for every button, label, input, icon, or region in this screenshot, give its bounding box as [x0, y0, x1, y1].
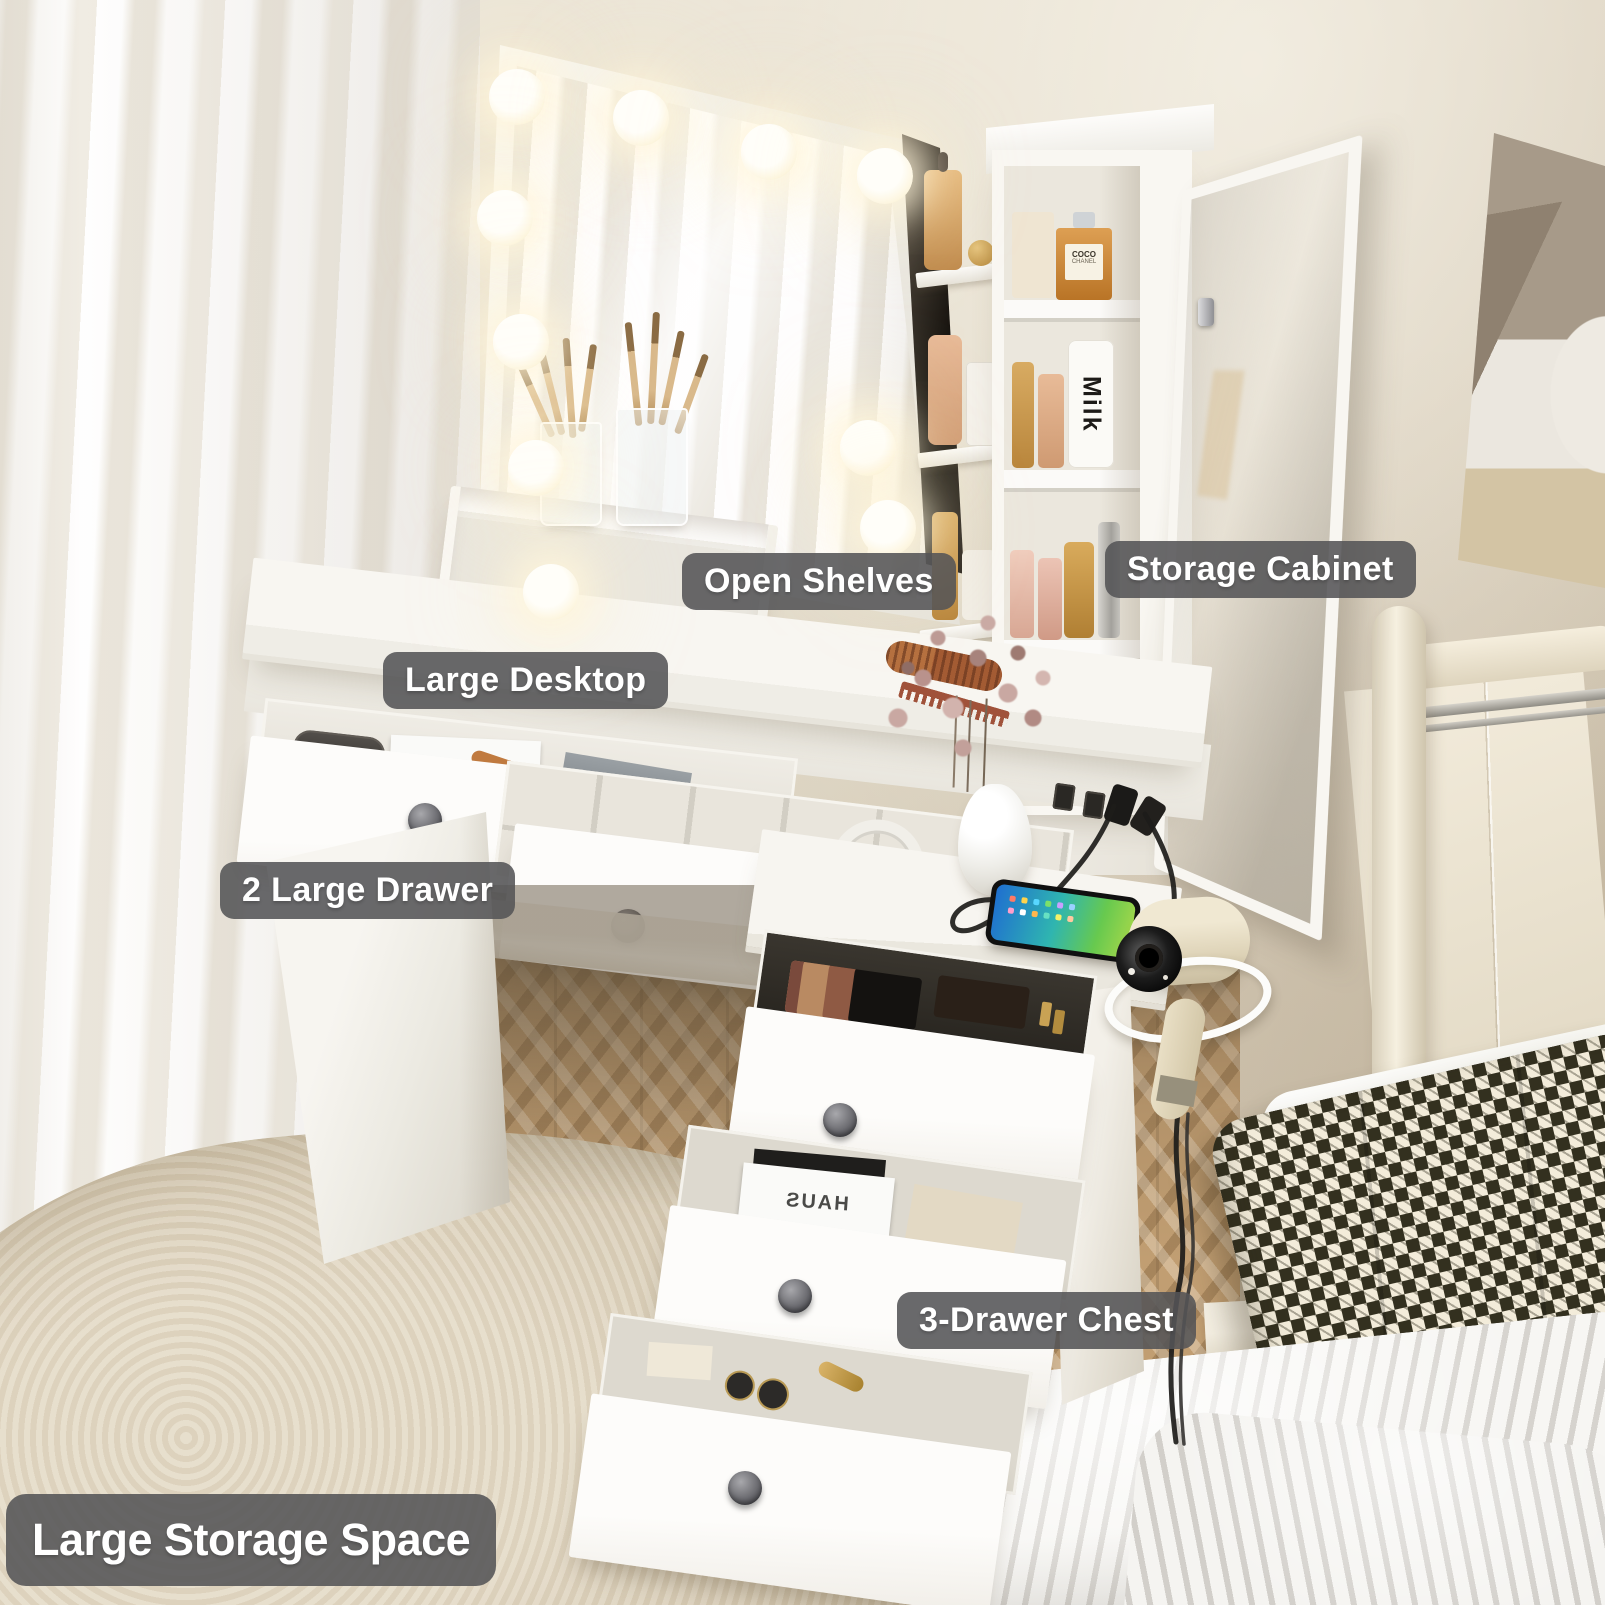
brush-cup-glass [616, 408, 688, 526]
perfume-label-name: COCO [1065, 244, 1103, 259]
vanity-light-bulb [493, 314, 549, 370]
shelf-jar-gold [968, 240, 994, 266]
callout-open-shelves: Open Shelves [682, 553, 956, 610]
vanity-light-bulb [523, 564, 579, 620]
perfume-label: COCO CHANEL [1065, 244, 1103, 280]
sunglasses [723, 1369, 757, 1403]
gold-tube [816, 1359, 866, 1394]
perfume-cap [1073, 212, 1095, 228]
smartphone-app-icons [997, 884, 1004, 891]
vanity-light-bulb [857, 148, 913, 204]
milk-bottle: Milk [1068, 340, 1114, 468]
vanity-light-bulb [860, 500, 916, 556]
callout-3-drawer-chest: 3-Drawer Chest [897, 1292, 1196, 1349]
vanity-light-bulb [489, 69, 545, 125]
chest-drawer-1-knob [823, 1103, 857, 1137]
milk-bottle-text: Milk [1077, 376, 1106, 433]
hair-dryer-intake-hole [1135, 944, 1163, 972]
cream-box [647, 1342, 713, 1380]
chest-drawer-3-knob [728, 1471, 762, 1505]
vanity-light-bulb [477, 190, 533, 246]
smartphone-screen [990, 884, 1136, 959]
hair-dryer-glint [1128, 968, 1135, 975]
perfume-label-brand: CHANEL [1065, 259, 1103, 265]
cabinet-bottle-rose [1038, 374, 1064, 468]
hair-dryer-face [1116, 926, 1182, 992]
wall-art-frame [1452, 128, 1605, 588]
shelf-bottle-rose [928, 335, 962, 445]
perfume-bottle-amber: COCO CHANEL [1056, 228, 1112, 300]
callout-2-large-drawer: 2 Large Drawer [220, 862, 515, 919]
pump-bottle-amber-nozzle [938, 152, 948, 172]
callout-large-storage-space: Large Storage Space [6, 1494, 496, 1586]
vanity-light-bulb [613, 90, 669, 146]
cabinet-bottle-gold-slim [1012, 362, 1034, 468]
door-handle [1198, 298, 1214, 326]
callout-large-desktop: Large Desktop [383, 652, 668, 709]
pump-bottle-amber [924, 170, 962, 270]
vanity-light-bulb [508, 440, 564, 496]
cabinet-cream-box [1012, 212, 1054, 298]
door-glass-reflection [1197, 370, 1244, 500]
product-photo-vanity-scene: COCO CHANEL Milk ST ST ST ST ST ST [0, 0, 1605, 1605]
vanity-light-bulb [840, 420, 896, 476]
chest-drawer-2-knob [778, 1279, 812, 1313]
dried-flowers [868, 598, 1088, 798]
callout-storage-cabinet: Storage Cabinet [1105, 541, 1416, 598]
vanity-light-bulb [741, 124, 797, 180]
